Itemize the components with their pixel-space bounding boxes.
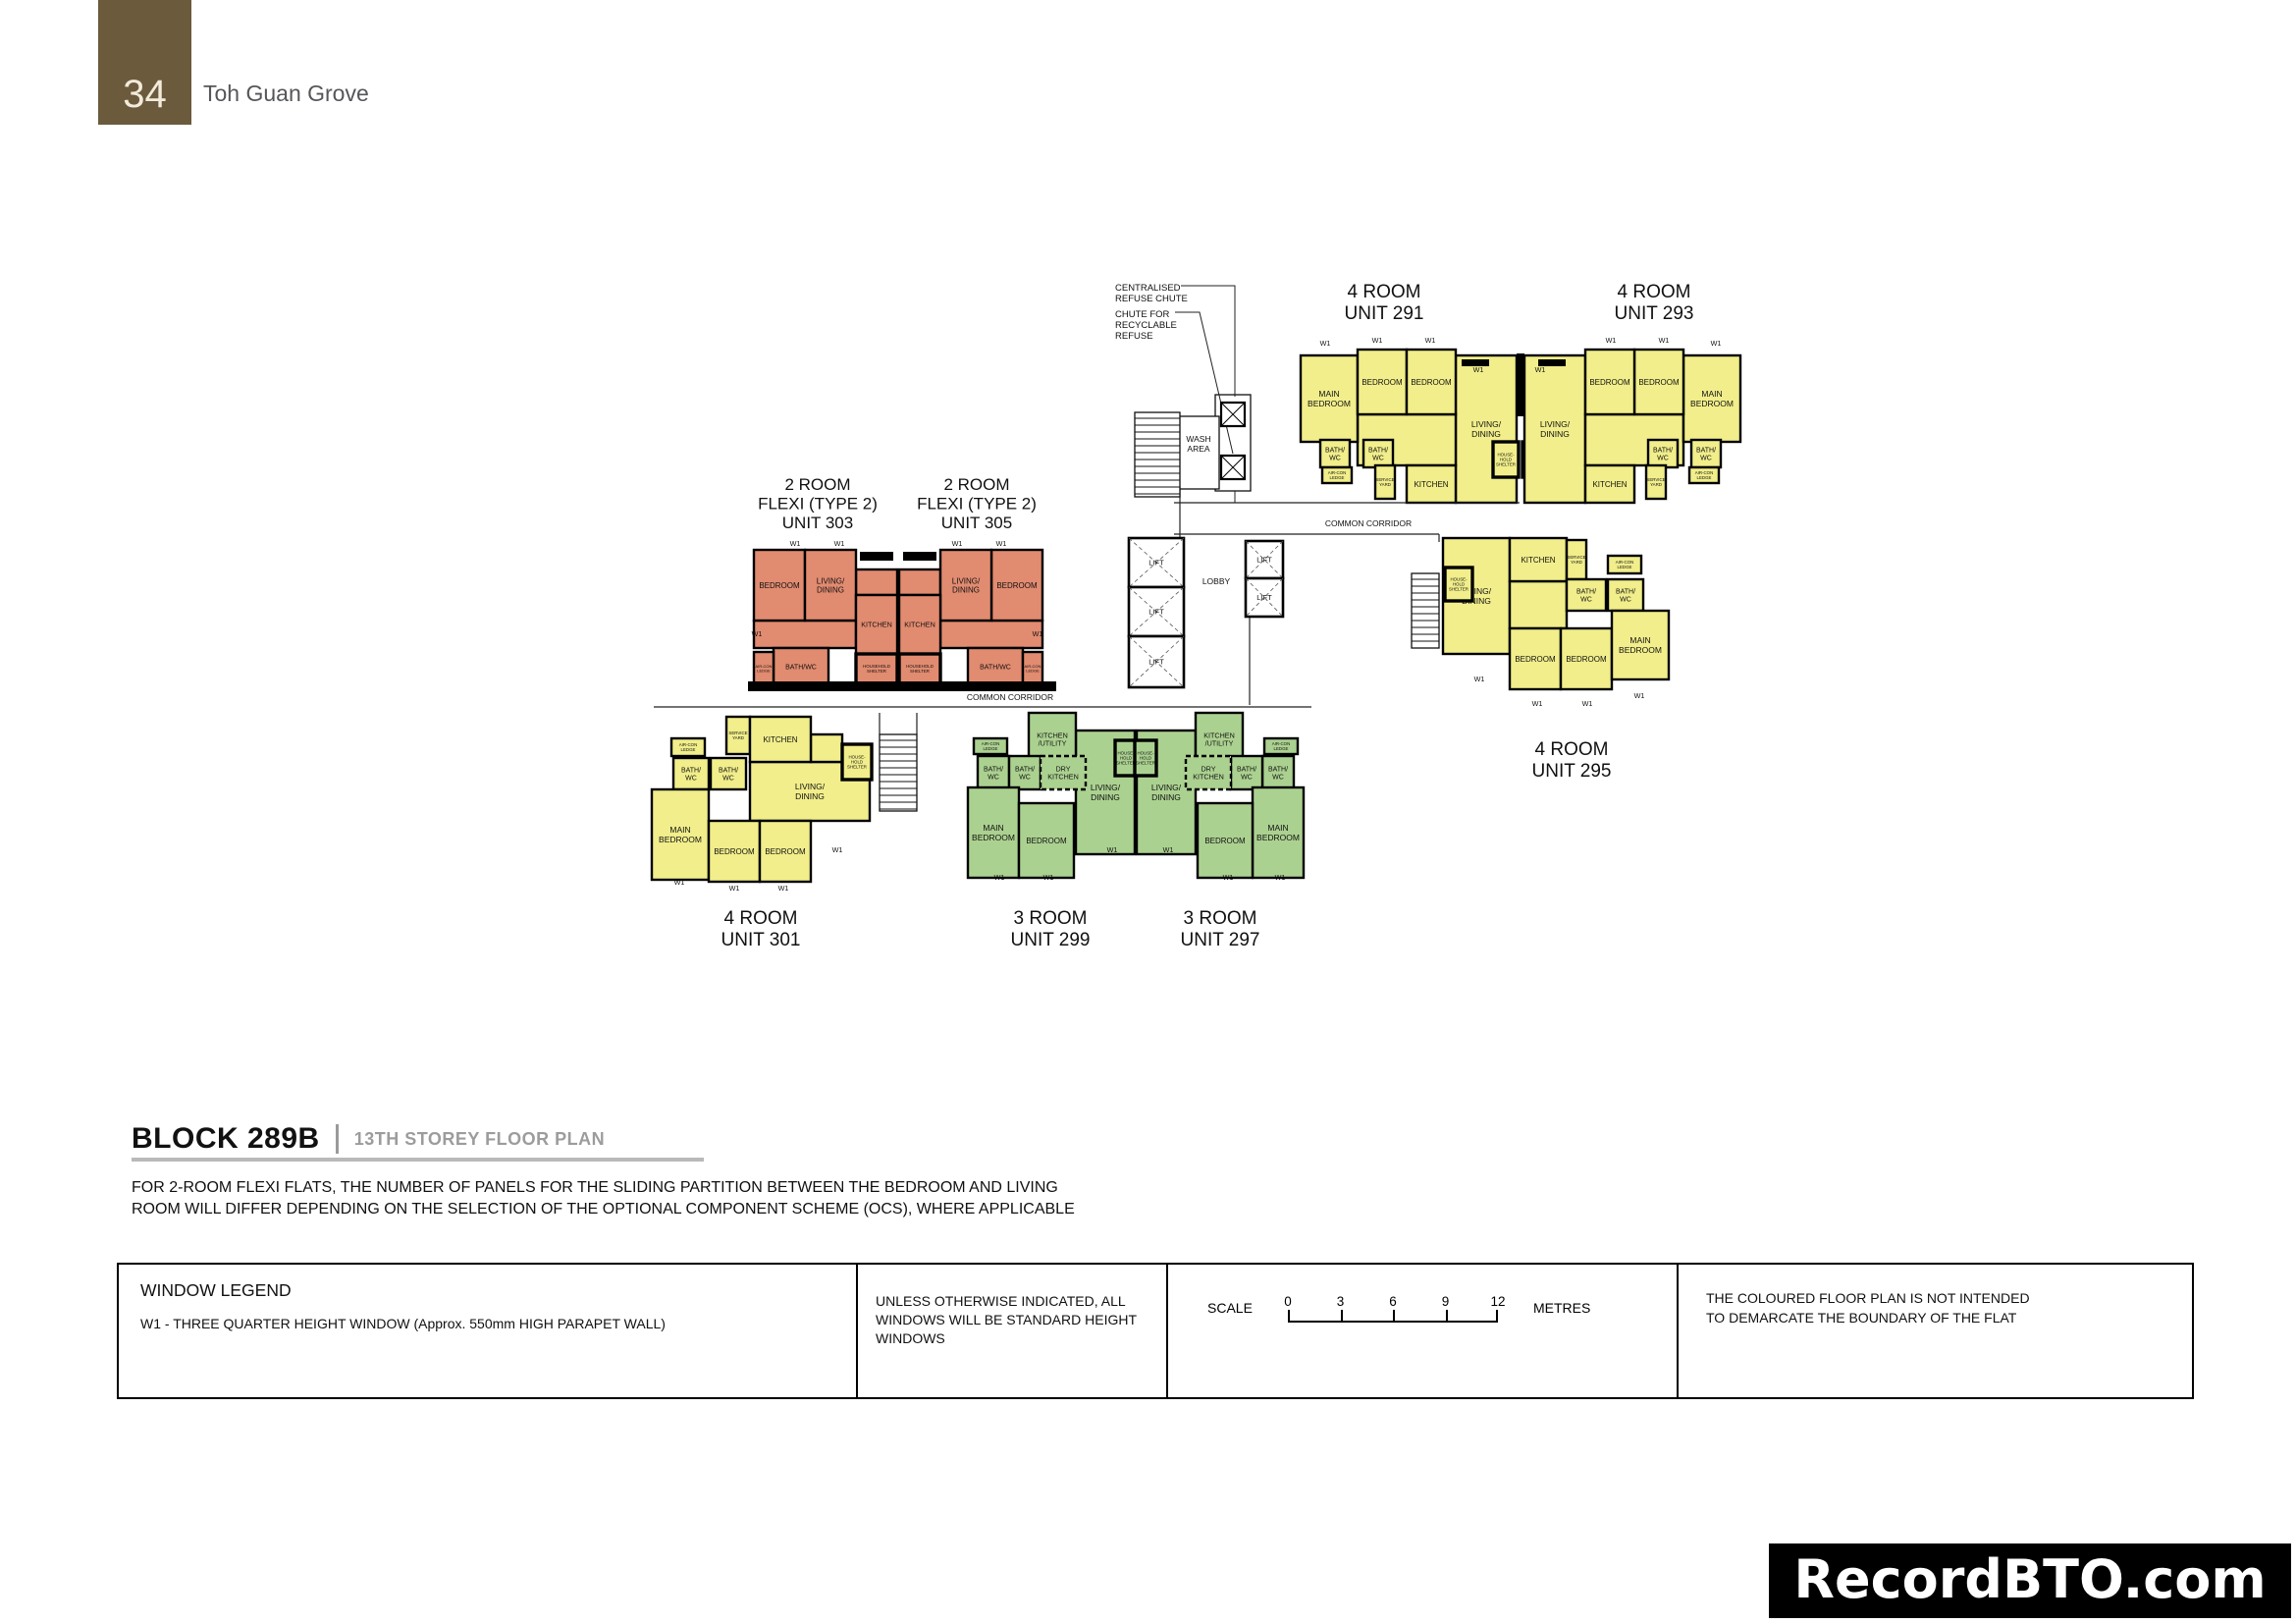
room-household-label: HOUSEHOLDSHELTER	[863, 664, 890, 674]
scale-tick-0: 0	[1284, 1294, 1292, 1309]
scale-tick-3: 3	[1337, 1294, 1345, 1309]
page-number-box: 34	[98, 0, 191, 125]
room-living--label: LIVING/DINING	[1471, 419, 1502, 439]
w1-marker: W1	[778, 884, 789, 893]
plan-label-unit-299: 3 ROOMUNIT 299	[1011, 908, 1091, 950]
scale-tick-6: 6	[1389, 1294, 1397, 1309]
w1-marker: W1	[1711, 339, 1722, 348]
scale-label: SCALE	[1207, 1300, 1253, 1316]
w1-marker: W1	[994, 873, 1005, 882]
room-bedroom-label: BEDROOM	[1566, 655, 1607, 664]
w1-marker: W1	[1634, 691, 1645, 700]
plan-label-common-corridor: COMMON CORRIDOR	[967, 692, 1053, 702]
floor-plan-page: LIVING/DININGMAINBEDROOMBEDROOMBEDROOMBA…	[0, 0, 2296, 1624]
block-title: BLOCK 289B	[132, 1122, 320, 1156]
w1-marker: W1	[1532, 699, 1543, 708]
w1-marker: W1	[996, 539, 1007, 548]
scale-cell: SCALE 0 3 6 9 12 METRES	[1166, 1265, 1677, 1397]
title-separator	[336, 1124, 339, 1154]
w1-marker: W1	[729, 884, 740, 893]
room-air-con-label: AIR-CONLEDGE	[1328, 470, 1347, 480]
lift-label: LIFT	[1148, 559, 1164, 568]
room-bath-wc-label: BATH/WC	[785, 665, 817, 672]
w1-marker: W1	[834, 539, 845, 548]
plan-label-refuse-chute: CENTRALISEDREFUSE CHUTE	[1115, 283, 1188, 304]
plan-label-unit-303: 2 ROOMFLEXI (TYPE 2)UNIT 303	[758, 475, 878, 532]
wall-segment	[1517, 353, 1524, 416]
scale-numbers: 0 3 6 9 12	[1288, 1294, 1498, 1310]
scale-tick-12: 12	[1490, 1294, 1505, 1309]
room-living--label: LIVING/DINING	[795, 782, 826, 801]
w1-marker: W1	[1582, 699, 1593, 708]
room-area	[754, 621, 856, 648]
window-legend-cell: WINDOW LEGEND W1 - THREE QUARTER HEIGHT …	[119, 1265, 856, 1397]
room-bedroom-label: BEDROOM	[1515, 655, 1556, 664]
w1-marker: W1	[1535, 365, 1546, 374]
staircase	[880, 734, 917, 811]
w1-marker: W1	[1033, 629, 1043, 638]
boundary-note-cell: THE COLOURED FLOOR PLAN IS NOT INTENDED …	[1677, 1265, 2192, 1397]
block-title-row: BLOCK 289B 13TH STOREY FLOOR PLAN	[132, 1122, 605, 1156]
w1-marker: W1	[790, 539, 801, 548]
room-air-con-label: AIR-CONLEDGE	[756, 664, 773, 674]
w1-marker: W1	[952, 539, 963, 548]
w1-marker: W1	[1163, 845, 1174, 854]
room-bedroom-label: BEDROOM	[1026, 837, 1067, 845]
room-living--label: LIVING/DINING	[952, 576, 981, 594]
room-area	[1510, 581, 1567, 628]
lift-label: LIFT	[1148, 658, 1164, 667]
plan-label-unit-305: 2 ROOMFLEXI (TYPE 2)UNIT 305	[917, 475, 1037, 532]
leader-line	[1181, 286, 1235, 397]
w1-marker: W1	[1425, 336, 1436, 345]
room-bedroom-label: BEDROOM	[765, 847, 806, 856]
room-air-con-label: AIR-CONLEDGE	[1695, 470, 1714, 480]
wall-segment	[860, 552, 893, 561]
w1-description: W1 - THREE QUARTER HEIGHT WINDOW (Approx…	[140, 1316, 666, 1331]
room-living--label: LIVING/DINING	[1091, 783, 1121, 802]
room-kitchen-label: KITCHEN/UTILITY	[1037, 731, 1068, 747]
plan-label-unit-291: 4 ROOMUNIT 291	[1345, 282, 1424, 324]
window-legend-title: WINDOW LEGEND	[140, 1280, 292, 1301]
standard-windows-cell: UNLESS OTHERWISE INDICATED, ALL WINDOWS …	[856, 1265, 1166, 1397]
w1-marker: W1	[832, 845, 843, 854]
room-bedroom-label: BEDROOM	[1411, 378, 1452, 387]
room-area	[899, 569, 940, 595]
recordbto-watermark: RecordBTO.com	[1769, 1543, 2291, 1618]
standard-windows-note: UNLESS OTHERWISE INDICATED, ALL WINDOWS …	[876, 1292, 1137, 1348]
room-kitchen-label: KITCHEN	[1521, 556, 1555, 565]
room-bedroom-label: BEDROOM	[759, 581, 800, 590]
lift-label: LIFT	[1256, 556, 1272, 565]
wall-segment	[903, 552, 936, 561]
room-kitchen-label: KITCHEN	[904, 621, 935, 629]
lift-label: LIFT	[1256, 593, 1272, 602]
storey-title: 13TH STOREY FLOOR PLAN	[354, 1129, 605, 1150]
room-living--label: LIVING/DINING	[1540, 419, 1571, 439]
w1-marker: W1	[1474, 675, 1485, 683]
ocs-note: FOR 2-ROOM FLEXI FLATS, THE NUMBER OF PA…	[132, 1177, 1075, 1220]
plan-label-lobby: LOBBY	[1202, 576, 1231, 586]
room-bedroom-label: BEDROOM	[1638, 378, 1680, 387]
w1-marker: W1	[1606, 336, 1617, 345]
room-air-con-label: AIR-CONLEDGE	[982, 741, 1000, 751]
room-bath-wc-label: BATH/WC	[980, 665, 1011, 672]
plan-label-unit-297: 3 ROOMUNIT 297	[1181, 908, 1260, 950]
room-kitchen-label: KITCHEN	[763, 735, 797, 744]
room-area	[856, 569, 897, 595]
title-underline	[132, 1158, 704, 1162]
room-living--label: LIVING/DINING	[1151, 783, 1182, 802]
room-bedroom-label: BEDROOM	[1589, 378, 1630, 387]
page-number: 34	[98, 73, 191, 117]
room-household-label: HOUSEHOLDSHELTER	[906, 664, 934, 674]
ocs-note-line1: FOR 2-ROOM FLEXI FLATS, THE NUMBER OF PA…	[132, 1177, 1075, 1199]
staircase	[1412, 573, 1439, 648]
plan-label-unit-301: 4 ROOMUNIT 301	[721, 908, 801, 950]
wall-segment	[748, 681, 1056, 691]
plan-label-unit-293: 4 ROOMUNIT 293	[1615, 282, 1694, 324]
plan-label-refuse: CHUTE FORRECYCLABLEREFUSE	[1115, 309, 1177, 342]
boundary-note: THE COLOURED FLOOR PLAN IS NOT INTENDED …	[1706, 1288, 2030, 1327]
floorplan-canvas: LIVING/DININGMAINBEDROOMBEDROOMBEDROOMBA…	[0, 0, 2296, 1080]
w1-marker: W1	[1043, 873, 1054, 882]
w1-marker: W1	[1659, 336, 1670, 345]
room-air-con-label: AIR-CONLEDGE	[1272, 741, 1291, 751]
plan-label-unit-295: 4 ROOMUNIT 295	[1532, 739, 1612, 782]
room-bedroom-label: BEDROOM	[1204, 837, 1246, 845]
lift-label: LIFT	[1148, 608, 1164, 617]
w1-marker: W1	[1372, 336, 1383, 345]
scale-unit: METRES	[1533, 1300, 1590, 1316]
room-kitchen-label: KITCHEN	[1592, 480, 1627, 489]
w1-marker: W1	[1107, 845, 1118, 854]
w1-marker: W1	[674, 878, 685, 887]
room-air-con-label: AIR-CONLEDGE	[679, 742, 698, 752]
w1-marker: W1	[1275, 873, 1286, 882]
scale-bar	[1288, 1312, 1498, 1323]
w1-marker: W1	[1473, 365, 1484, 374]
room-kitchen-label: KITCHEN	[861, 621, 892, 629]
room-air-con-label: AIR-CONLEDGE	[1025, 664, 1041, 674]
plan-label-common-corridor: COMMON CORRIDOR	[1325, 518, 1412, 528]
plan-label-area: WASHAREA	[1186, 434, 1210, 454]
room-area	[940, 621, 1042, 648]
room-area	[811, 734, 842, 762]
room-kitchen-label: KITCHEN/UTILITY	[1203, 731, 1235, 747]
legend-table: WINDOW LEGEND W1 - THREE QUARTER HEIGHT …	[117, 1263, 2194, 1399]
w1-marker: W1	[1320, 339, 1331, 348]
ocs-note-line2: ROOM WILL DIFFER DEPENDING ON THE SELECT…	[132, 1199, 1075, 1220]
project-name: Toh Guan Grove	[203, 81, 369, 107]
room-kitchen-label: KITCHEN	[1414, 480, 1448, 489]
w1-marker: W1	[752, 629, 763, 638]
room-bedroom-label: BEDROOM	[714, 847, 755, 856]
scale-tick-9: 9	[1442, 1294, 1450, 1309]
room-air-con-label: AIR-CONLEDGE	[1616, 560, 1634, 569]
room-bedroom-label: BEDROOM	[996, 581, 1038, 590]
w1-marker: W1	[1223, 873, 1234, 882]
room-living--label: LIVING/DINING	[817, 576, 845, 594]
room-bedroom-label: BEDROOM	[1362, 378, 1403, 387]
